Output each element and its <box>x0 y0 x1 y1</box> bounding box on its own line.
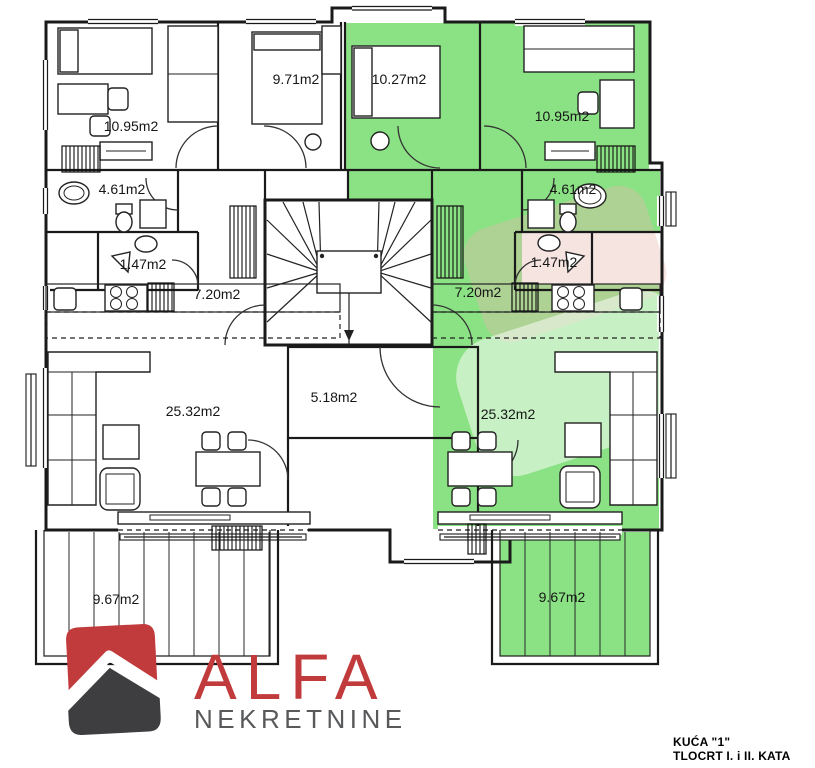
tv-shelf <box>118 512 310 524</box>
coffee-table <box>565 423 601 457</box>
room-label-left-wc: 1.47m2 <box>120 256 167 272</box>
dresser <box>545 142 595 160</box>
bed <box>58 28 152 74</box>
coffee-table <box>103 425 139 459</box>
stair-direction-arrow <box>344 330 354 341</box>
wardrobe <box>168 26 218 122</box>
wardrobe <box>524 26 634 72</box>
room-label-entry: 5.18m2 <box>311 389 358 405</box>
logo-mark <box>59 623 163 736</box>
title-house: KUĆA "1" <box>673 734 730 749</box>
logo: ALFA NEKRETNINE <box>59 623 406 736</box>
room-label-right-wc: 1.47m2 <box>531 254 578 270</box>
closet <box>322 26 341 74</box>
logo-subtitle: NEKRETNINE <box>194 704 407 734</box>
tv-shelf <box>438 512 622 524</box>
floor-plan: 10.95m2 9.71m2 4.61m2 1.47m2 7.20m2 25.3… <box>0 0 815 768</box>
room-label-right-hall: 7.20m2 <box>455 284 502 300</box>
stool <box>305 134 321 150</box>
room-label-right-bedroom2: 10.95m2 <box>535 108 590 124</box>
room-label-right-bathroom: 4.61m2 <box>550 181 597 197</box>
room-label-right-terrace: 9.67m2 <box>539 589 586 605</box>
dresser <box>100 142 152 160</box>
dining-set <box>196 432 260 506</box>
room-label-right-bedroom1: 10.27m2 <box>372 71 427 87</box>
room-label-left-bedroom1: 10.95m2 <box>104 118 159 134</box>
room-label-right-living: 25.32m2 <box>481 406 536 422</box>
room-label-left-bedroom2: 9.71m2 <box>273 71 320 87</box>
floor-plan-page: 10.95m2 9.71m2 4.61m2 1.47m2 7.20m2 25.3… <box>0 0 815 768</box>
logo-title: ALFA <box>194 641 387 713</box>
armchair <box>100 468 140 510</box>
room-label-left-living: 25.32m2 <box>166 403 221 419</box>
room-label-left-hall: 7.20m2 <box>194 286 241 302</box>
armchair <box>560 466 600 508</box>
title-block: KUĆA "1" TLOCRT I. i II. KATA <box>673 734 791 763</box>
stairs <box>267 202 431 345</box>
room-label-left-bathroom: 4.61m2 <box>99 181 146 197</box>
room-label-left-terrace: 9.67m2 <box>93 591 140 607</box>
stool <box>371 132 389 150</box>
title-floor: TLOCRT I. i II. KATA <box>673 749 791 763</box>
